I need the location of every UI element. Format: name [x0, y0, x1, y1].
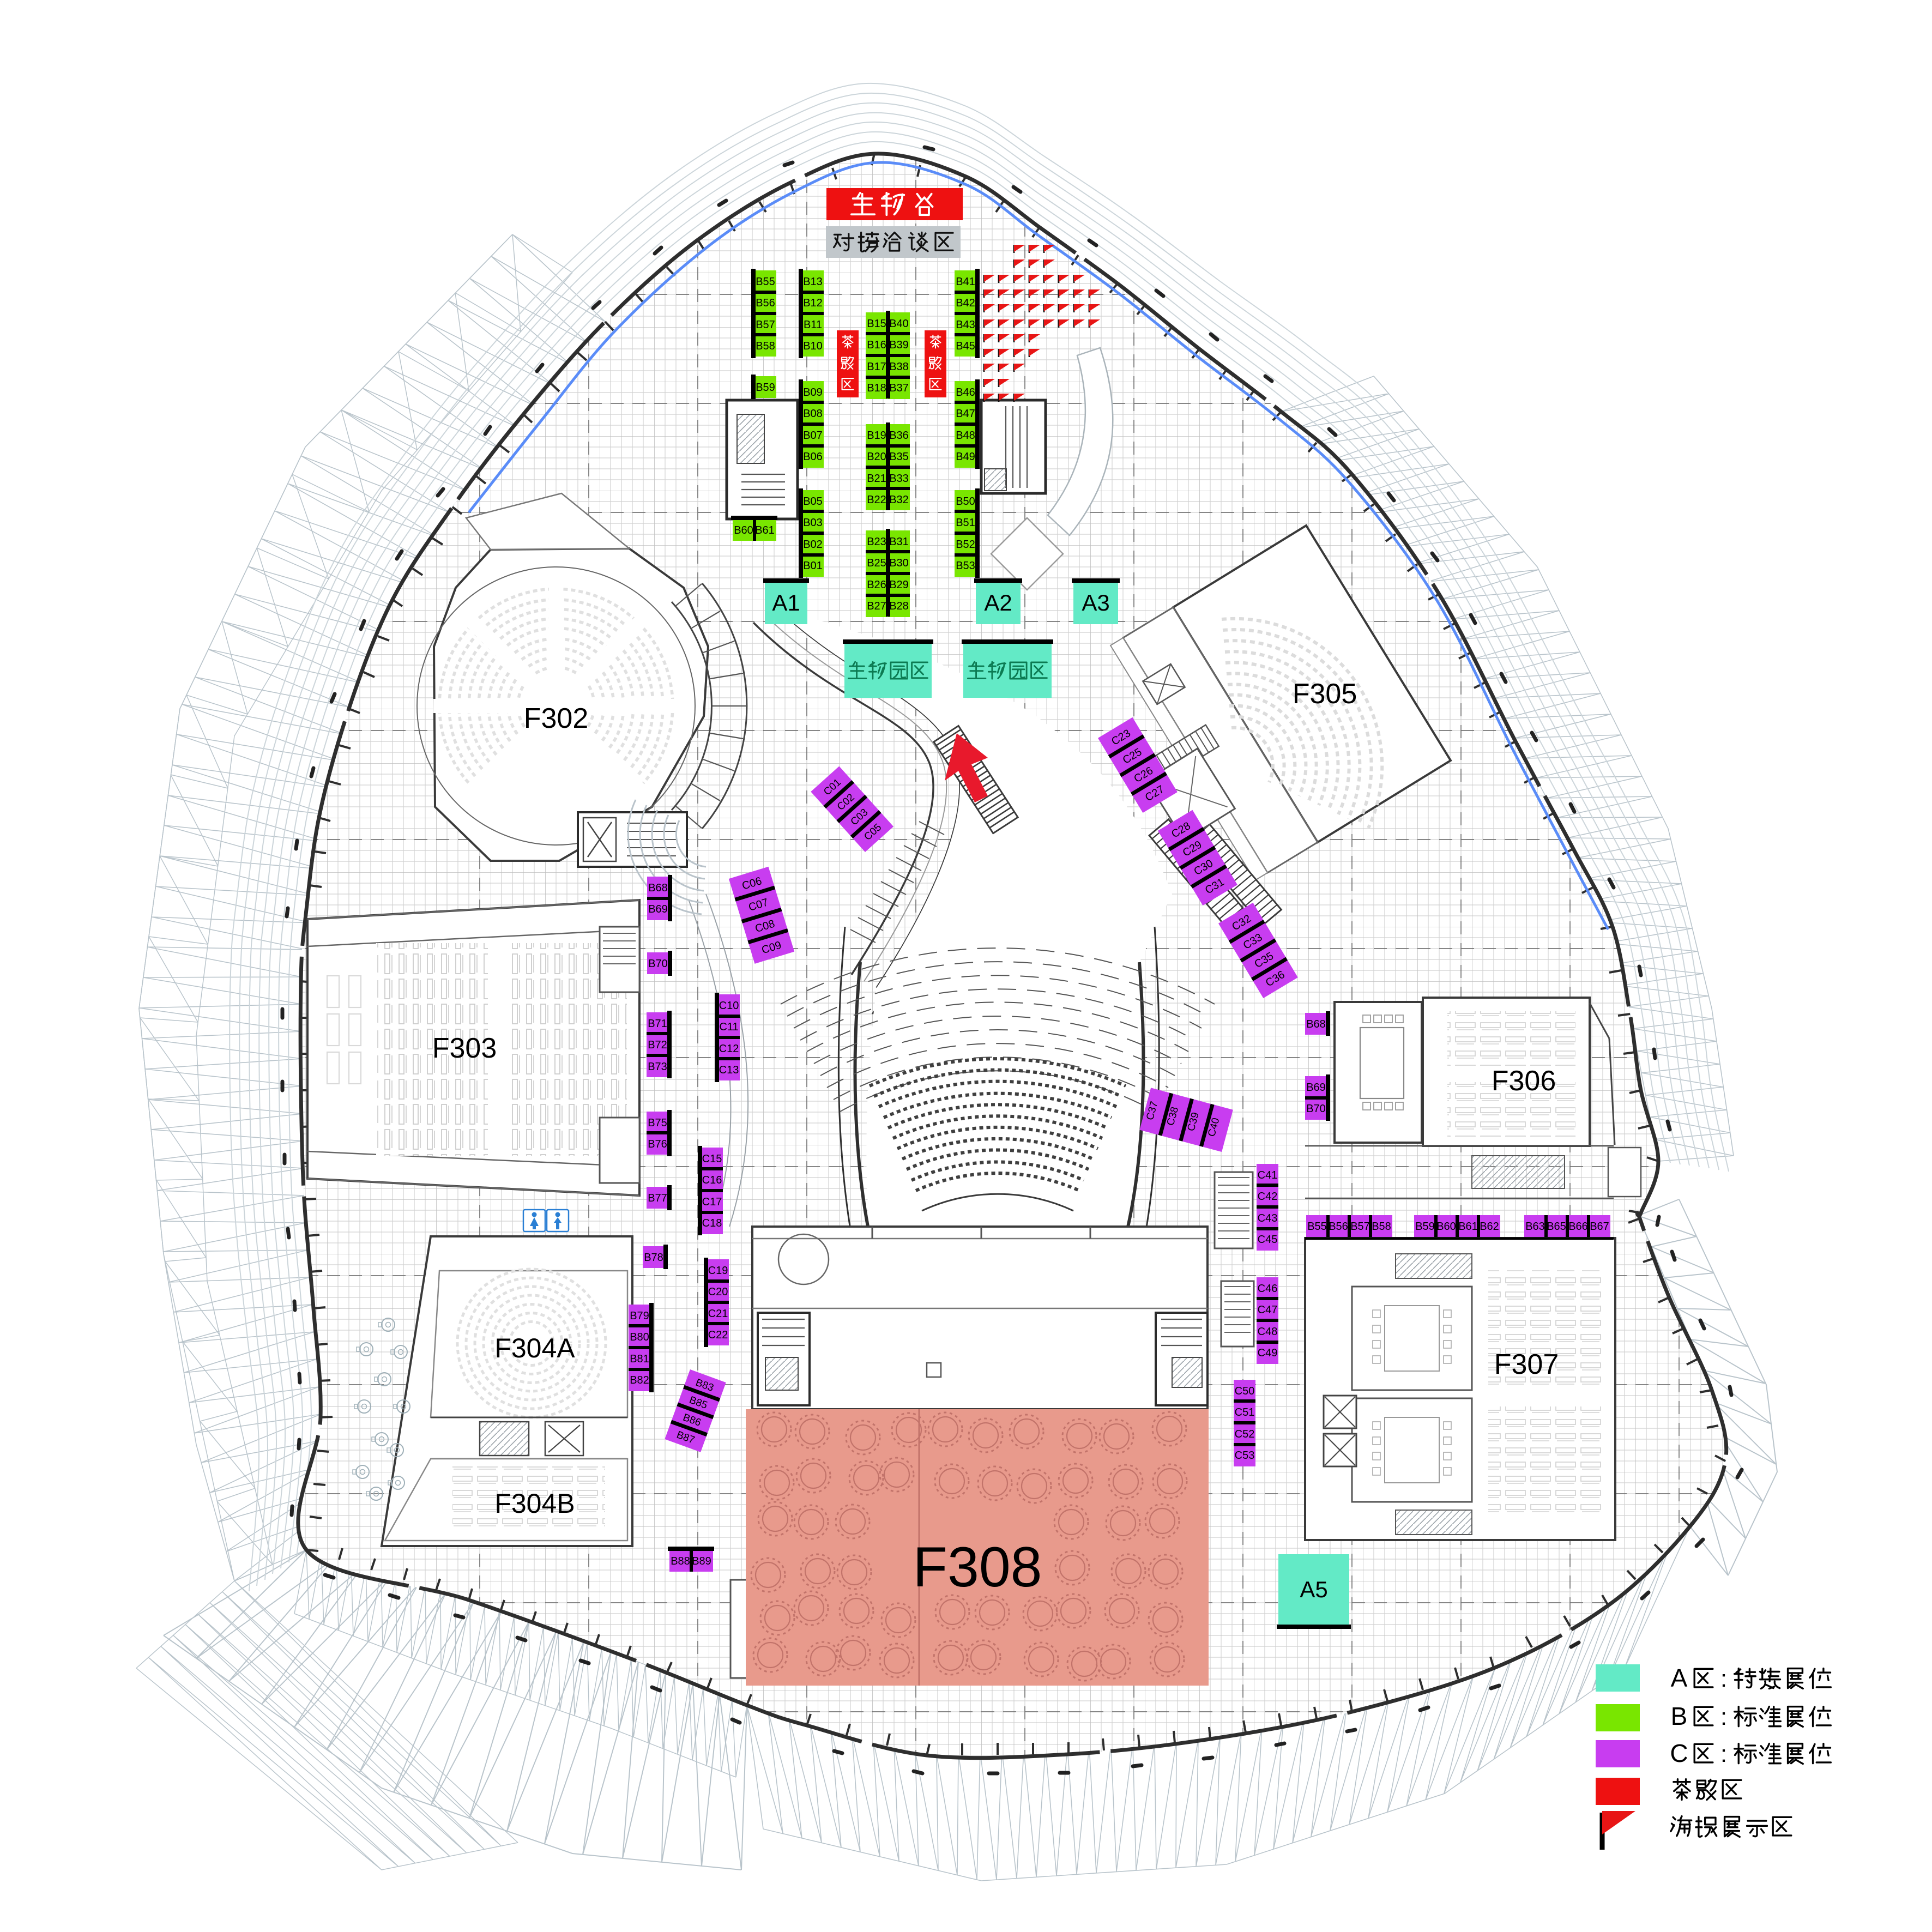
svg-text:B26: B26 — [867, 579, 886, 591]
svg-text:B01: B01 — [803, 560, 823, 572]
svg-text:B03: B03 — [803, 517, 823, 529]
svg-text:B50: B50 — [956, 496, 975, 508]
svg-text:F307: F307 — [1494, 1349, 1559, 1380]
svg-text:B52: B52 — [956, 539, 975, 551]
svg-text:C42: C42 — [1258, 1191, 1278, 1203]
svg-text:B58: B58 — [756, 340, 775, 352]
svg-text:B27: B27 — [867, 600, 886, 612]
svg-text:B02: B02 — [803, 539, 823, 551]
svg-text:B42: B42 — [956, 297, 975, 309]
svg-text:A: A — [1671, 1664, 1688, 1692]
svg-text:B48: B48 — [956, 430, 975, 442]
svg-text:A5: A5 — [1300, 1577, 1327, 1602]
svg-text:B36: B36 — [889, 430, 909, 442]
svg-text:B69: B69 — [1306, 1082, 1326, 1094]
svg-text::: : — [1720, 1741, 1727, 1767]
svg-text:B72: B72 — [648, 1039, 667, 1051]
svg-text:B57: B57 — [756, 319, 775, 331]
svg-text:B35: B35 — [889, 451, 909, 463]
svg-text:B08: B08 — [803, 408, 823, 420]
svg-text:B22: B22 — [867, 494, 886, 506]
svg-text:B68: B68 — [648, 882, 668, 894]
svg-text:B15: B15 — [867, 318, 886, 330]
svg-text:B56: B56 — [756, 297, 775, 309]
svg-text:B18: B18 — [867, 382, 886, 394]
svg-text:C11: C11 — [719, 1021, 738, 1033]
svg-text:B60: B60 — [734, 524, 753, 536]
svg-text:B56: B56 — [1329, 1221, 1348, 1233]
svg-text:B45: B45 — [956, 340, 975, 352]
svg-text:B38: B38 — [889, 361, 909, 373]
svg-text:C43: C43 — [1258, 1212, 1278, 1224]
svg-text:B59: B59 — [1415, 1221, 1435, 1233]
svg-text:B40: B40 — [889, 318, 909, 330]
svg-text:F305: F305 — [1293, 678, 1357, 710]
svg-text:B25: B25 — [867, 557, 886, 569]
svg-text:B61: B61 — [1458, 1221, 1478, 1233]
svg-text:B29: B29 — [889, 579, 909, 591]
svg-text:B09: B09 — [803, 387, 823, 399]
svg-text:B61: B61 — [755, 524, 775, 536]
svg-text:B69: B69 — [648, 903, 668, 915]
svg-text:C10: C10 — [719, 1000, 739, 1012]
svg-text:B07: B07 — [803, 430, 823, 442]
svg-text:B13: B13 — [803, 276, 823, 288]
svg-text:B33: B33 — [889, 473, 909, 485]
svg-text:C49: C49 — [1258, 1347, 1278, 1359]
svg-text:B73: B73 — [648, 1061, 667, 1073]
svg-text:C50: C50 — [1235, 1385, 1255, 1397]
svg-text:C12: C12 — [719, 1043, 739, 1055]
svg-text::: : — [1720, 1704, 1727, 1730]
svg-text:B77: B77 — [648, 1192, 667, 1204]
svg-text:B79: B79 — [630, 1310, 649, 1322]
svg-text:B47: B47 — [956, 408, 975, 420]
svg-text:F304A: F304A — [494, 1333, 575, 1363]
svg-text:B28: B28 — [889, 600, 909, 612]
svg-text:B60: B60 — [1436, 1221, 1456, 1233]
svg-text:F303: F303 — [432, 1033, 497, 1064]
svg-text:B76: B76 — [648, 1138, 667, 1150]
svg-text:F306: F306 — [1492, 1065, 1556, 1097]
svg-text:C47: C47 — [1258, 1304, 1278, 1316]
svg-text:C22: C22 — [708, 1329, 728, 1341]
svg-text:C48: C48 — [1258, 1326, 1278, 1338]
svg-text:C: C — [1670, 1739, 1688, 1767]
svg-text:C20: C20 — [708, 1286, 728, 1298]
svg-text:B65: B65 — [1547, 1221, 1566, 1233]
svg-text:B11: B11 — [804, 319, 822, 331]
svg-text:B78: B78 — [644, 1252, 663, 1264]
svg-text:B12: B12 — [803, 297, 823, 309]
svg-text:B71: B71 — [648, 1018, 667, 1030]
svg-text:B17: B17 — [867, 361, 886, 373]
svg-text:B55: B55 — [756, 276, 775, 288]
svg-text:C13: C13 — [719, 1064, 739, 1076]
svg-text:B46: B46 — [956, 387, 975, 399]
svg-text:C51: C51 — [1235, 1406, 1255, 1418]
svg-text:A1: A1 — [772, 590, 800, 615]
svg-text:A2: A2 — [984, 590, 1012, 615]
svg-text:B39: B39 — [889, 339, 909, 351]
svg-text:B06: B06 — [803, 451, 823, 463]
svg-text:B16: B16 — [867, 339, 886, 351]
svg-text:B51: B51 — [956, 517, 975, 529]
svg-text:F304B: F304B — [494, 1488, 575, 1519]
svg-text:B59: B59 — [756, 382, 775, 394]
svg-text:B70: B70 — [648, 958, 668, 970]
svg-text:C53: C53 — [1235, 1450, 1255, 1462]
svg-text:C52: C52 — [1235, 1428, 1255, 1440]
svg-text:B75: B75 — [648, 1117, 667, 1129]
svg-text:C46: C46 — [1258, 1283, 1278, 1295]
svg-text::: : — [1720, 1665, 1727, 1692]
svg-text:C15: C15 — [702, 1153, 722, 1165]
svg-text:B19: B19 — [867, 430, 886, 442]
svg-text:B89: B89 — [692, 1555, 711, 1567]
svg-text:B66: B66 — [1568, 1221, 1588, 1233]
svg-text:C17: C17 — [702, 1196, 722, 1208]
svg-text:F308: F308 — [913, 1536, 1042, 1599]
svg-text:B80: B80 — [630, 1331, 649, 1343]
svg-text:B43: B43 — [956, 319, 975, 331]
svg-text:C18: C18 — [702, 1217, 722, 1229]
svg-text:B20: B20 — [867, 451, 886, 463]
svg-text:B: B — [1671, 1702, 1688, 1730]
svg-text:C21: C21 — [708, 1308, 728, 1320]
svg-text:B67: B67 — [1590, 1221, 1609, 1233]
svg-text:B57: B57 — [1350, 1221, 1370, 1233]
svg-text:B37: B37 — [889, 382, 909, 394]
svg-text:B23: B23 — [867, 536, 886, 548]
svg-text:B21: B21 — [867, 473, 886, 485]
svg-text:A3: A3 — [1082, 590, 1109, 615]
svg-text:B41: B41 — [956, 276, 975, 288]
svg-text:B49: B49 — [956, 451, 975, 463]
svg-text:B55: B55 — [1307, 1221, 1327, 1233]
svg-text:B58: B58 — [1372, 1221, 1391, 1233]
svg-text:B70: B70 — [1306, 1103, 1326, 1115]
svg-text:B81: B81 — [630, 1353, 649, 1365]
svg-text:C45: C45 — [1258, 1234, 1278, 1246]
svg-text:B05: B05 — [803, 496, 823, 508]
svg-text:B63: B63 — [1525, 1221, 1545, 1233]
svg-text:B68: B68 — [1306, 1018, 1326, 1030]
svg-text:B30: B30 — [889, 557, 909, 569]
svg-text:C41: C41 — [1258, 1169, 1278, 1181]
svg-text:B82: B82 — [630, 1374, 649, 1386]
svg-text:C19: C19 — [708, 1265, 728, 1277]
svg-text:F302: F302 — [524, 703, 589, 734]
svg-text:C16: C16 — [702, 1174, 722, 1186]
svg-text:B31: B31 — [889, 536, 909, 548]
svg-text:B10: B10 — [803, 340, 823, 352]
svg-text:B53: B53 — [956, 560, 975, 572]
svg-text:B32: B32 — [889, 494, 909, 506]
svg-text:B62: B62 — [1480, 1221, 1499, 1233]
svg-text:B88: B88 — [671, 1555, 690, 1567]
